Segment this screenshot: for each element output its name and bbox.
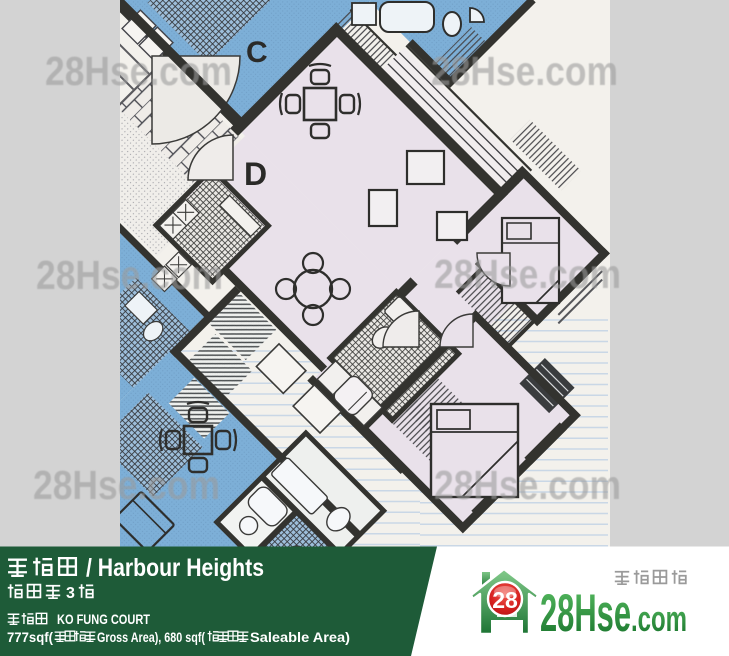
svg-text:/ Harbour Heights: / Harbour Heights <box>86 554 264 582</box>
svg-text:28: 28 <box>492 587 518 613</box>
svg-text:3: 3 <box>66 585 75 602</box>
svg-text:28Hse: 28Hse <box>540 584 631 643</box>
svg-text:28Hse.com: 28Hse.com <box>434 462 621 508</box>
svg-text:D: D <box>244 156 267 192</box>
svg-text:777sqf(: 777sqf( <box>7 630 53 645</box>
svg-text:28Hse.com: 28Hse.com <box>36 252 223 298</box>
svg-text:.com: .com <box>631 598 687 639</box>
svg-text:C: C <box>246 36 268 69</box>
svg-text:28Hse.com: 28Hse.com <box>431 48 618 94</box>
svg-text:28Hse.com: 28Hse.com <box>33 462 220 508</box>
svg-text:Gross Area), 680 sqf(: Gross Area), 680 sqf( <box>97 630 205 645</box>
svg-text:28Hse.com: 28Hse.com <box>434 251 621 297</box>
svg-text:KO FUNG COURT: KO FUNG COURT <box>57 612 151 627</box>
svg-text:28Hse.com: 28Hse.com <box>45 48 232 94</box>
svg-text:Saleable Area): Saleable Area) <box>250 630 350 645</box>
